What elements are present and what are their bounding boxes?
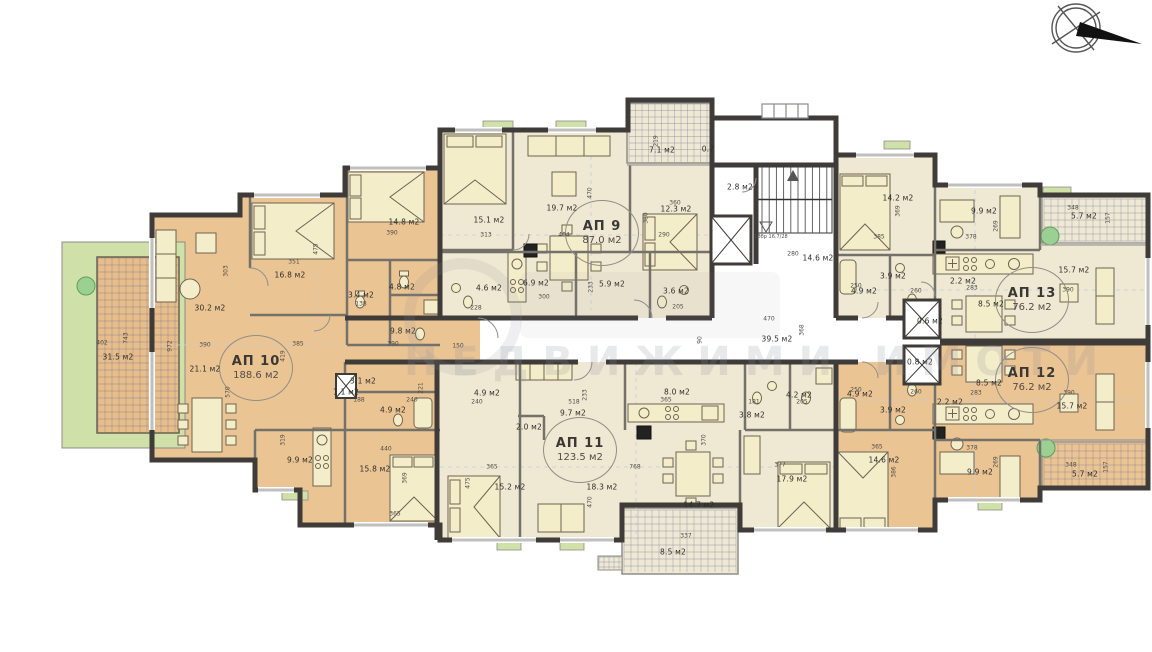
apartment-area: 76.2 м2	[1012, 382, 1051, 393]
room-area-label: 15.8 м2	[360, 465, 391, 474]
room-area-label: 39.5 м2	[762, 335, 793, 344]
dimension-label: 743	[123, 332, 130, 343]
floor-plan-canvas: АП 987.0 м2АП 10188.6 м2АП 11123.5 м2АП …	[0, 0, 1152, 652]
dimension-label: 157	[1103, 461, 1110, 472]
dimension-label: 470	[763, 316, 774, 323]
room-area-label: 21.1 м2	[190, 365, 221, 374]
dimension-label: 972	[167, 340, 174, 351]
room-area-label: 4.9 м2	[380, 406, 406, 415]
apartment-area: 188.6 м2	[233, 370, 279, 381]
dimension-label: 260	[910, 389, 921, 396]
dimension-label: 385	[873, 234, 884, 241]
dimension-label: 390	[199, 342, 210, 349]
dimension-label: 768	[629, 464, 640, 471]
dimension-label: 233	[582, 389, 589, 400]
room-area-label: 9.8 м2	[390, 327, 416, 336]
apartment-label-ап11: АП 11123.5 м2	[543, 417, 617, 483]
plan-labels: АП 987.0 м2АП 10188.6 м2АП 11123.5 м2АП …	[0, 0, 1152, 652]
dimension-label: 470	[587, 496, 594, 507]
dimension-label: 157	[1105, 212, 1112, 223]
room-area-label: 7.1 м2	[649, 146, 675, 155]
apartment-area: 87.0 м2	[582, 235, 621, 246]
room-area-label: 14.7 м2	[684, 501, 715, 510]
room-area-label: 15.7 м2	[1057, 402, 1088, 411]
apartment-area: 123.5 м2	[557, 452, 603, 463]
dimension-label: 181	[748, 399, 759, 406]
dimension-label: 570	[225, 386, 232, 397]
apartment-area: 76.2 м2	[1012, 302, 1051, 313]
dimension-label: 260	[910, 288, 921, 295]
dimension-label: 390	[1062, 287, 1073, 294]
dimension-label: 240	[471, 399, 482, 406]
room-area-label: 3.4 м2	[348, 291, 374, 300]
dimension-label: 250	[850, 283, 861, 290]
room-area-label: 30.2 м2	[195, 304, 226, 313]
room-area-label: 2.2 м2	[937, 398, 963, 407]
room-area-label: 3.9 м2	[880, 272, 906, 281]
room-area-label: 4.9 м2	[474, 389, 500, 398]
dimension-label: 518	[568, 399, 579, 406]
room-area-label: 16.8 м2	[275, 271, 306, 280]
room-area-label: 18.3 м2	[587, 483, 618, 492]
dimension-label: 269	[993, 456, 1000, 467]
dimension-label: 313	[480, 232, 491, 239]
dimension-label: 370	[701, 434, 708, 445]
room-area-label: 5.7 м2	[1072, 470, 1098, 479]
room-area-label: 14.6 м2	[869, 456, 900, 465]
stair-note-label: 18бр 16.7/28	[754, 234, 787, 240]
room-area-label: 4.6 м2	[476, 284, 502, 293]
dimension-label: 138	[355, 301, 366, 308]
room-area-label: 14.6 м2	[803, 254, 834, 263]
room-area-label: 0.6 м2	[917, 317, 943, 326]
room-area-label: 8.5 м2	[976, 379, 1002, 388]
room-area-label: 3.1 м2	[350, 377, 376, 386]
dimension-label: 150	[452, 343, 463, 350]
room-area-label: 9.9 м2	[971, 207, 997, 216]
dimension-label: 348	[1065, 462, 1076, 469]
dimension-label: 402	[96, 340, 107, 347]
dimension-label: 219	[653, 135, 660, 146]
dimension-label: 390	[386, 230, 397, 237]
room-area-label: 15.2 м2	[495, 483, 526, 492]
room-area-label: 14.2 м2	[883, 194, 914, 203]
dimension-label: 205	[672, 304, 683, 311]
dimension-label: 404	[558, 232, 569, 239]
room-area-label: 3.8 м2	[739, 411, 765, 420]
room-area-label: 0.8 м2	[907, 358, 933, 367]
dimension-label: 290	[658, 232, 669, 239]
apartment-label-ап13: АП 1376.2 м2	[995, 267, 1069, 333]
dimension-label: 348	[1067, 205, 1078, 212]
dimension-label: 269	[993, 220, 1000, 231]
room-area-label: 9.7 м2	[560, 409, 586, 418]
dimension-label: 369	[895, 205, 902, 216]
apartment-name: АП 11	[556, 437, 605, 451]
dimension-label: 377	[774, 462, 785, 469]
room-area-label: 0.7	[702, 145, 715, 154]
room-area-label: 6.9 м2	[523, 279, 549, 288]
dimension-label: 188	[353, 397, 364, 404]
dimension-label: 303	[223, 265, 230, 276]
dimension-label: 369	[402, 472, 409, 483]
room-area-label: 19.7 м2	[547, 204, 578, 213]
dimension-label: 360	[669, 200, 680, 207]
room-area-label: 17.9 м2	[777, 475, 808, 484]
dimension-label: 337	[680, 533, 691, 540]
room-area-label: 1.1 м2	[333, 388, 359, 397]
room-area-label: 8.5 м2	[978, 300, 1004, 309]
dimension-label: 300	[538, 294, 549, 301]
dimension-label: 368	[799, 324, 806, 335]
dimension-label: 386	[891, 466, 898, 477]
dimension-label: 440	[380, 446, 391, 453]
dimension-label: 283	[966, 285, 977, 292]
dimension-label: 351	[288, 259, 299, 266]
room-area-label: 5.7 м2	[1071, 212, 1097, 221]
apartment-name: АП 9	[583, 220, 622, 234]
dimension-label: 221	[418, 382, 425, 393]
dimension-label: 385	[292, 341, 303, 348]
room-area-label: 2.0 м2	[516, 423, 542, 432]
room-area-label: 2.8 м2	[727, 183, 753, 192]
dimension-label: 365	[389, 511, 400, 518]
dimension-label: 390	[387, 341, 398, 348]
room-area-label: 4.8 м2	[389, 283, 415, 292]
room-area-label: 8.5 м2	[660, 548, 686, 557]
room-area-label: 9.9 м2	[967, 468, 993, 477]
room-area-label: 9.9 м2	[287, 456, 313, 465]
dimension-label: 233	[588, 281, 595, 292]
dimension-label: 378	[965, 234, 976, 241]
dimension-label: 283	[970, 390, 981, 397]
room-area-label: 3.6 м2	[663, 287, 689, 296]
room-area-label: 14.8 м2	[389, 218, 420, 227]
dimension-label: 475	[313, 243, 320, 254]
room-area-label: 31.5 м2	[103, 353, 134, 362]
dimension-label: 280	[787, 251, 798, 258]
dimension-label: 390	[1063, 390, 1074, 397]
apartment-name: АП 10	[232, 355, 281, 369]
apartment-name: АП 12	[1008, 367, 1057, 381]
dimension-label: 319	[280, 434, 287, 445]
dimension-label: 365	[486, 464, 497, 471]
room-area-label: 3.9 м2	[880, 406, 906, 415]
dimension-label: 365	[871, 444, 882, 451]
room-area-label: 15.7 м2	[1059, 266, 1090, 275]
dimension-label: 365	[660, 397, 671, 404]
dimension-label: 419	[280, 350, 287, 361]
room-area-label: 5.9 м2	[599, 280, 625, 289]
dimension-label: 205	[796, 399, 807, 406]
dimension-label: 475	[465, 477, 472, 488]
dimension-label: 240	[406, 397, 417, 404]
dimension-label: 250	[850, 387, 861, 394]
apartment-name: АП 13	[1008, 287, 1057, 301]
room-area-label: 8.0 м2	[664, 388, 690, 397]
dimension-label: 470	[587, 187, 594, 198]
dimension-label: 380	[643, 212, 650, 223]
dimension-label: 228	[470, 305, 481, 312]
dimension-label: 90	[697, 336, 704, 344]
room-area-label: 15.1 м2	[474, 216, 505, 225]
dimension-label: 378	[966, 445, 977, 452]
